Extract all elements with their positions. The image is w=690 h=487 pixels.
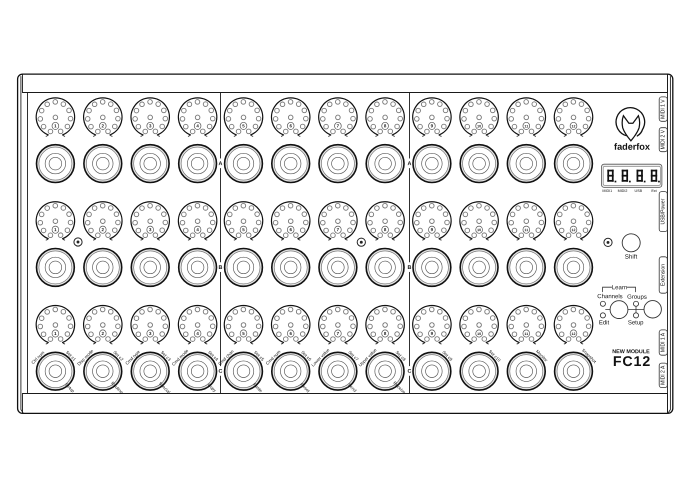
svg-text:Copy: Copy xyxy=(207,382,218,393)
svg-text:MIDI 1 A: MIDI 1 A xyxy=(661,332,667,352)
svg-text:3: 3 xyxy=(149,331,152,336)
svg-text:Edit: Edit xyxy=(599,320,610,326)
svg-text:2: 2 xyxy=(102,123,105,128)
svg-text:faderfox: faderfox xyxy=(614,142,651,152)
svg-text:Extension: Extension xyxy=(661,264,667,286)
svg-text:7: 7 xyxy=(337,331,340,336)
svg-text:B: B xyxy=(219,265,223,271)
svg-text:10: 10 xyxy=(477,124,481,128)
svg-text:8: 8 xyxy=(384,331,387,336)
svg-text:B: B xyxy=(408,265,412,271)
svg-text:4: 4 xyxy=(196,227,199,232)
svg-text:C: C xyxy=(408,369,412,375)
svg-text:Shift: Shift xyxy=(625,254,638,261)
svg-text:MIDI2: MIDI2 xyxy=(618,189,628,193)
svg-text:7: 7 xyxy=(337,123,340,128)
svg-text:Send: Send xyxy=(347,382,358,393)
svg-text:10: 10 xyxy=(477,332,481,336)
svg-text:A: A xyxy=(408,161,412,167)
svg-text:Channels: Channels xyxy=(597,294,622,300)
svg-text:Groups: Groups xyxy=(627,295,647,301)
svg-text:11: 11 xyxy=(524,332,528,336)
svg-text:11: 11 xyxy=(524,124,528,128)
svg-text:1: 1 xyxy=(54,227,57,232)
svg-text:C: C xyxy=(219,369,223,375)
svg-text:USB: USB xyxy=(635,189,643,193)
svg-text:MIDI1: MIDI1 xyxy=(602,189,612,193)
svg-text:11: 11 xyxy=(524,228,528,232)
svg-text:6: 6 xyxy=(289,331,292,336)
svg-text:MIDI 2 V: MIDI 2 V xyxy=(661,129,667,149)
svg-text:A: A xyxy=(219,161,223,167)
svg-text:12: 12 xyxy=(572,228,576,232)
svg-text:5: 5 xyxy=(242,227,245,232)
svg-text:12: 12 xyxy=(572,332,576,336)
svg-text:10: 10 xyxy=(477,228,481,232)
svg-text:1: 1 xyxy=(54,123,57,128)
svg-text:9: 9 xyxy=(431,123,434,128)
svg-text:8: 8 xyxy=(384,123,387,128)
svg-text:3: 3 xyxy=(149,227,152,232)
svg-text:2: 2 xyxy=(102,331,105,336)
svg-text:3: 3 xyxy=(149,123,152,128)
svg-text:9: 9 xyxy=(431,331,434,336)
svg-text:Ext: Ext xyxy=(651,189,656,193)
svg-text:FC12: FC12 xyxy=(613,354,651,370)
svg-text:4: 4 xyxy=(196,123,199,128)
svg-text:MIDI 2 A: MIDI 2 A xyxy=(661,365,667,385)
svg-text:1: 1 xyxy=(54,331,57,336)
svg-text:9: 9 xyxy=(431,227,434,232)
svg-text:7: 7 xyxy=(337,227,340,232)
svg-text:MIDI 1 V: MIDI 1 V xyxy=(661,99,667,119)
svg-text:5: 5 xyxy=(242,123,245,128)
svg-text:Learn: Learn xyxy=(612,285,627,291)
svg-text:5: 5 xyxy=(242,331,245,336)
svg-text:2: 2 xyxy=(102,227,105,232)
svg-text:6: 6 xyxy=(289,123,292,128)
svg-text:USB/Power: USB/Power xyxy=(661,198,667,224)
svg-text:6: 6 xyxy=(289,227,292,232)
svg-text:8: 8 xyxy=(384,227,387,232)
svg-text:Setup: Setup xyxy=(628,320,644,326)
svg-text:12: 12 xyxy=(572,124,576,128)
svg-text:4: 4 xyxy=(196,331,199,336)
